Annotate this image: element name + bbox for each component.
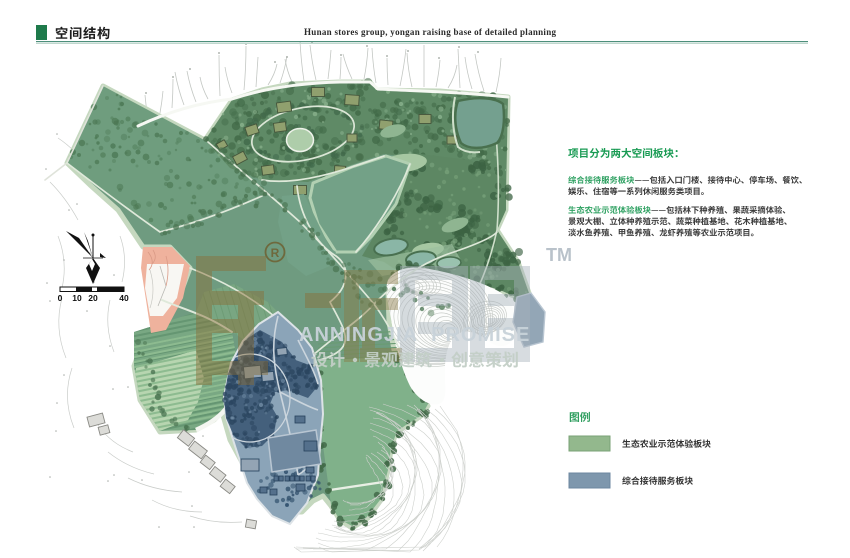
- svg-text:TM: TM: [546, 245, 572, 265]
- svg-text:ANNINGJIA PROMISE: ANNINGJIA PROMISE: [299, 324, 530, 346]
- svg-text:10: 10: [72, 293, 82, 303]
- svg-text:20: 20: [88, 293, 98, 303]
- svg-text:40: 40: [119, 293, 129, 303]
- svg-text:R: R: [271, 246, 280, 260]
- svg-text:0: 0: [58, 293, 63, 303]
- svg-text:Hunan stores group, yongan rai: Hunan stores group, yongan raising base …: [304, 27, 556, 37]
